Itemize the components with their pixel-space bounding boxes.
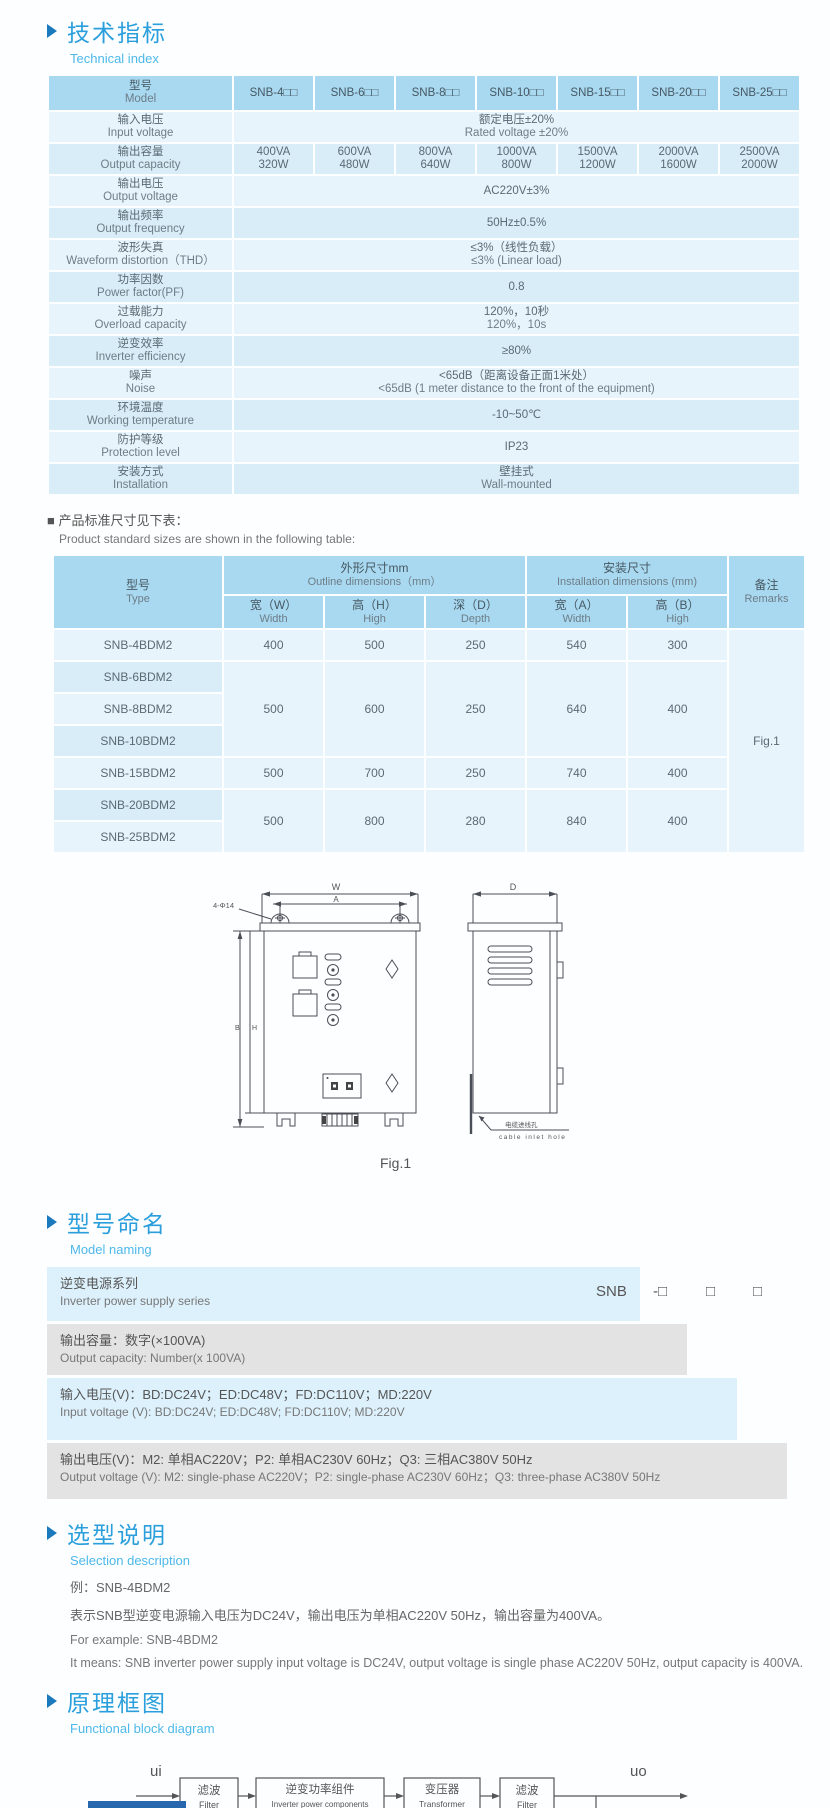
- naming-row-input-voltage: 输入电压(V)：BD:DC24V；ED:DC48V；FD:DC110V；MD:2…: [47, 1378, 737, 1440]
- cable-inlet-label-en: cable inlet hole: [499, 1134, 566, 1141]
- size-note-en: Product standard sizes are shown in the …: [59, 532, 830, 546]
- block-filter1-zh: 滤波: [198, 1784, 221, 1797]
- size-remark: Fig.1: [729, 630, 804, 852]
- section-title: 原理框图: [67, 1684, 167, 1718]
- spec-row-waveform-distortion: 波形失真Waveform distortion（THD） ≤3%（线性负载）≤3…: [49, 240, 799, 270]
- spec-row-overload-capacity: 过载能力Overload capacity 120%，10秒120%，10s: [49, 304, 799, 334]
- spec-row-output-frequency: 输出频率Output frequency 50Hz±0.5%: [49, 208, 799, 238]
- diagram-output-label: uo: [630, 1763, 647, 1780]
- figure-caption: Fig.1: [380, 1155, 411, 1171]
- selection-desc-zh: 表示SNB型逆变电源输入电压为DC24V，输出电压为单相AC220V 50Hz，…: [70, 1605, 830, 1624]
- figure-1-drawing: W A 4-Φ14 B H: [205, 878, 830, 1191]
- dim-label-h: H: [252, 1025, 257, 1032]
- section-subtitle: Technical index: [70, 51, 830, 66]
- block-filter1-en: Filter: [199, 1800, 219, 1808]
- size-note: ■ 产品标准尺寸见下表： Product standard sizes are …: [47, 510, 830, 546]
- spec-model: SNB-6□□: [315, 76, 394, 110]
- block-transformer-zh: 变压器: [425, 1782, 460, 1796]
- spec-model: SNB-4□□: [234, 76, 313, 110]
- section-subtitle: Selection description: [70, 1553, 830, 1568]
- footer-bar: [88, 1801, 186, 1808]
- selection-section: 选型说明 Selection description 例：SNB-4BDM2 表…: [0, 1502, 830, 1670]
- spec-model: SNB-10□□: [477, 76, 556, 110]
- spec-row-working-temperature: 环境温度Working temperature -10~50℃: [49, 400, 799, 430]
- size-header-row1: 型号Type 外形尺寸mmOutline dimensions（mm） 安装尺寸…: [54, 556, 804, 594]
- block-filter2-zh: 滤波: [516, 1784, 539, 1797]
- spec-header-row: 型号Model SNB-4□□ SNB-6□□ SNB-8□□ SNB-10□□…: [49, 76, 799, 110]
- model-code-seg1: -□: [653, 1283, 667, 1300]
- size-row: SNB-20BDM2 500 800 280 840 400: [54, 790, 804, 820]
- section-title: 选型说明: [67, 1516, 167, 1550]
- spec-row-noise: 噪声Noise <65dB（距离设备正面1米处）<65dB (1 meter d…: [49, 368, 799, 398]
- size-table: 型号Type 外形尺寸mmOutline dimensions（mm） 安装尺寸…: [52, 554, 806, 854]
- block-inverter-zh: 逆变功率组件: [286, 1782, 355, 1796]
- spec-model: SNB-25□□: [720, 76, 799, 110]
- spec-model: SNB-15□□: [558, 76, 637, 110]
- naming-row-output-voltage: 输出电压(V)：M2: 单相AC220V；P2: 单相AC230V 60Hz；Q…: [47, 1443, 787, 1499]
- model-code-seg3: □: [753, 1283, 762, 1300]
- section-arrow-icon: [47, 1215, 57, 1229]
- section-arrow-icon: [47, 1694, 57, 1708]
- diagram-input-label: ui: [150, 1763, 162, 1780]
- selection-desc-en: It means: SNB inverter power supply inpu…: [70, 1656, 830, 1670]
- dim-label-b: B: [235, 1025, 240, 1032]
- technical-spec-table: 型号Model SNB-4□□ SNB-6□□ SNB-8□□ SNB-10□□…: [47, 74, 801, 496]
- section-header-naming: 型号命名: [47, 1191, 830, 1239]
- spec-row-output-capacity: 输出容量Output capacity 400VA320W 600VA480W …: [49, 144, 799, 174]
- functional-block-diagram: ui 滤波 Filter 逆变功率组件 Inverter power compo…: [128, 1750, 830, 1808]
- section-subtitle: Functional block diagram: [70, 1721, 830, 1736]
- size-row: SNB-15BDM2 500 700 250 740 400: [54, 758, 804, 788]
- block-transformer-en: Transformer: [419, 1799, 465, 1808]
- dim-label-a: A: [333, 895, 339, 904]
- section-header-technical: 技术指标: [47, 0, 830, 48]
- spec-row-protection-level: 防护等级Protection level IP23: [49, 432, 799, 462]
- model-code: SNB -□ □ □: [47, 1267, 800, 1321]
- datasheet-page: 技术指标 Technical index 型号Model SNB-4□□ SNB…: [0, 0, 830, 1808]
- holes-label: 4-Φ14: [213, 901, 234, 910]
- dim-label-w: W: [332, 882, 341, 892]
- spec-row-installation: 安装方式Installation 壁挂式Wall-mounted: [49, 464, 799, 494]
- size-row: SNB-6BDM2 500 600 250 640 400: [54, 662, 804, 692]
- size-row: SNB-4BDM2 400 500 250 540 300 Fig.1: [54, 630, 804, 660]
- cable-inlet-label-zh: 电缆进线孔: [505, 1120, 538, 1129]
- section-title: 技术指标: [67, 14, 167, 48]
- model-naming-table: SNB -□ □ □ 逆变电源系列Inverter power supply s…: [47, 1267, 800, 1499]
- spec-row-output-voltage: 输出电压Output voltage AC220V±3%: [49, 176, 799, 206]
- spec-model: SNB-8□□: [396, 76, 475, 110]
- section-subtitle: Model naming: [70, 1242, 830, 1257]
- section-header-block-diagram: 原理框图: [47, 1670, 830, 1718]
- section-arrow-icon: [47, 1526, 57, 1540]
- naming-row-capacity: 输出容量：数字(×100VA)Output capacity: Number(x…: [47, 1324, 687, 1375]
- selection-example-zh: 例：SNB-4BDM2: [70, 1577, 830, 1596]
- block-inverter-en: Inverter power components: [272, 1800, 369, 1808]
- spec-model: SNB-20□□: [639, 76, 718, 110]
- spec-header-model: 型号Model: [49, 76, 232, 110]
- selection-example-en: For example: SNB-4BDM2: [70, 1633, 830, 1647]
- spec-row-power-factor: 功率因数Power factor(PF) 0.8: [49, 272, 799, 302]
- spec-row-input-voltage: 输入电压Input voltage 额定电压±20%Rated voltage …: [49, 112, 799, 142]
- section-title: 型号命名: [67, 1205, 167, 1239]
- section-arrow-icon: [47, 24, 57, 38]
- size-note-zh: ■ 产品标准尺寸见下表：: [47, 510, 830, 529]
- spec-row-inverter-efficiency: 逆变效率Inverter efficiency ≥80%: [49, 336, 799, 366]
- model-code-seg2: □: [706, 1283, 715, 1300]
- section-header-selection: 选型说明: [47, 1502, 830, 1550]
- model-code-prefix: SNB: [596, 1283, 627, 1300]
- dim-label-d: D: [510, 882, 517, 892]
- block-filter2-en: Filter: [517, 1800, 537, 1808]
